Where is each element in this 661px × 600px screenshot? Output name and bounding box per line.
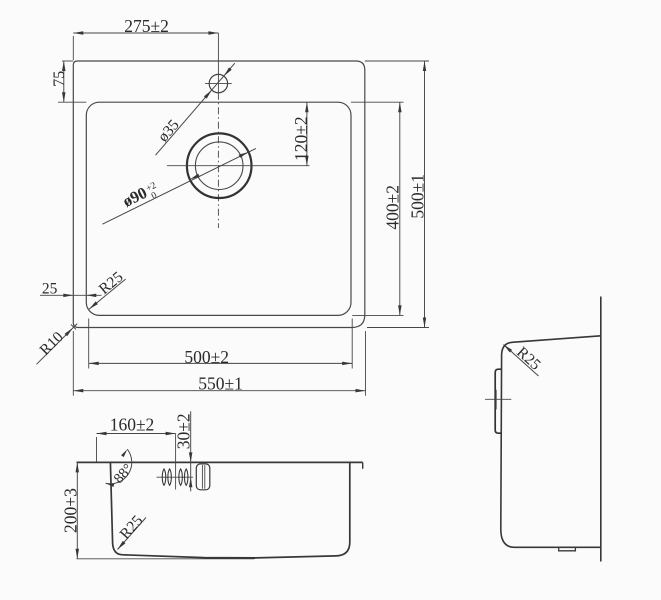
svg-text:30±2: 30±2 <box>173 413 193 449</box>
svg-text:75: 75 <box>51 71 68 87</box>
svg-text:R25: R25 <box>513 344 544 374</box>
svg-text:R25: R25 <box>116 512 146 543</box>
svg-text:400±2: 400±2 <box>382 185 402 230</box>
svg-text:R25: R25 <box>96 268 127 298</box>
svg-text:R10: R10 <box>36 328 66 358</box>
svg-text:160±2: 160±2 <box>110 415 155 435</box>
svg-text:25: 25 <box>42 281 58 298</box>
svg-text:500±2: 500±2 <box>184 347 229 367</box>
svg-text:500±1: 500±1 <box>408 174 428 219</box>
svg-text:ø35: ø35 <box>155 116 183 145</box>
svg-text:120±2: 120±2 <box>291 116 311 161</box>
svg-text:550±1: 550±1 <box>198 374 243 394</box>
svg-text:275±2: 275±2 <box>124 16 169 36</box>
svg-text:200+3: 200+3 <box>60 488 80 533</box>
